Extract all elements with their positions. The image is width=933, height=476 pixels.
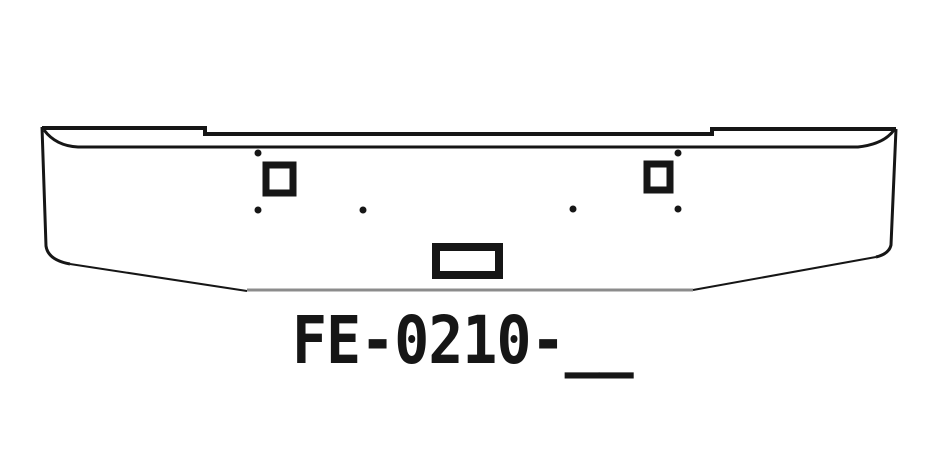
part-number-label: FE-0210-__ [292,301,634,379]
bumper-top-edge [42,128,896,134]
bumper-right-edge [876,129,896,257]
bumper-left-edge [42,127,70,264]
bolt-hole-dot [675,150,682,157]
bolt-hole-dot [675,206,682,213]
bumper-bottom-right-angled-edge [693,257,876,290]
part-diagram-canvas: FE-0210-__ [0,0,933,476]
bolt-hole-dot [570,206,577,213]
bumper-bottom-left-angled-edge [70,264,247,291]
left-mounting-hole [266,165,293,193]
right-mounting-hole [647,164,670,190]
bolt-hole-dot [255,150,262,157]
bolt-hole-dot [360,207,367,214]
center-tow-pin-hole [436,247,499,275]
bolt-hole-dot [255,207,262,214]
bumper-diagram: FE-0210-__ [0,0,933,476]
